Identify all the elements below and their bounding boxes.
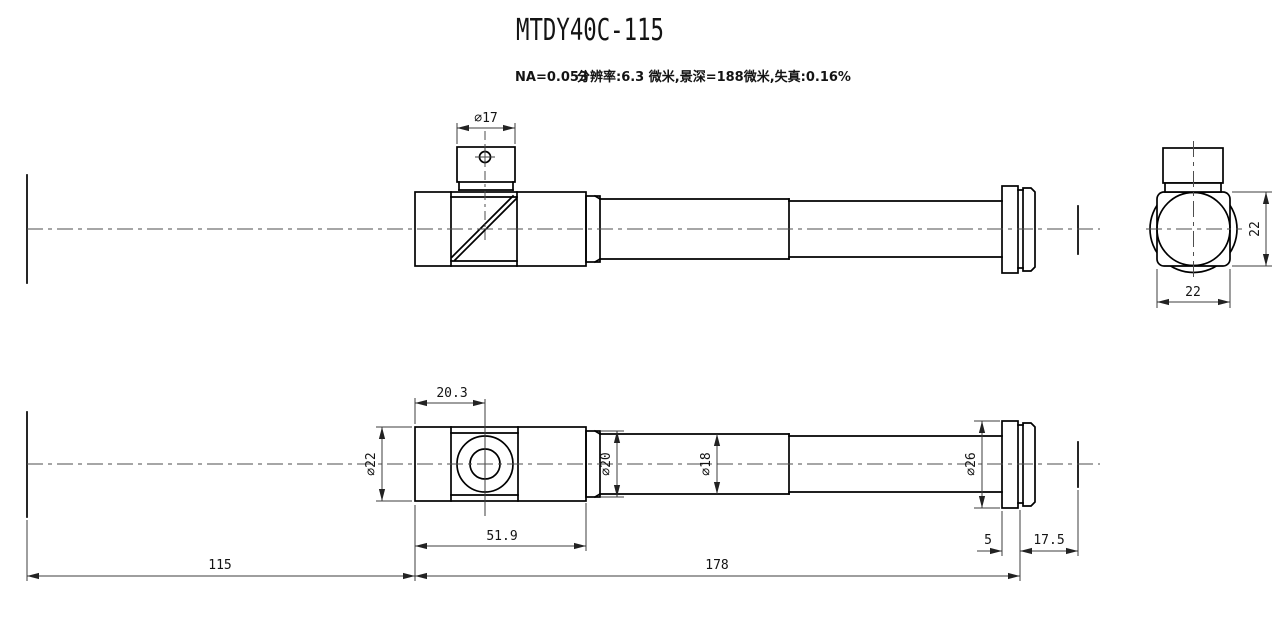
- dim-collar-diameter-label: ∅20: [599, 452, 614, 475]
- dim-object-distance-label: 115: [208, 558, 231, 573]
- beamsplitter-diagonal: [452, 196, 516, 260]
- dim-tube-length: 178: [415, 558, 1020, 576]
- dim-object-distance: 115: [27, 520, 415, 581]
- header: MTDY40C-115 NA=0.053 分辨率:6.3 微米,景深=188微米…: [515, 13, 851, 85]
- dim-flange-diameter-label: ∅26: [964, 452, 979, 475]
- dim-hole-offset: 20.3: [415, 386, 485, 424]
- dim-flange-width-label: 5: [984, 533, 992, 548]
- dim-flange-to-focus: 17.5: [1020, 490, 1078, 581]
- dim-body-length-label: 51.9: [486, 529, 517, 544]
- dim-end-width-label: 22: [1185, 285, 1201, 300]
- dim-flange-to-focus-label: 17.5: [1033, 533, 1064, 548]
- dim-body-length: 51.9: [415, 503, 586, 581]
- camera-port-neck: [459, 182, 513, 190]
- dim-port-diameter-label: ∅17: [474, 111, 497, 126]
- dim-hole-offset-label: 20.3: [436, 386, 467, 401]
- end-view: [1146, 141, 1242, 278]
- dim-tube-diameter-label: ∅18: [699, 452, 714, 475]
- top-side-view: [27, 131, 1100, 283]
- dim-tube-length-label: 178: [705, 558, 728, 573]
- cad-drawing: MTDY40C-115 NA=0.053 分辨率:6.3 微米,景深=188微米…: [0, 0, 1281, 620]
- dim-port-diameter: ∅17: [457, 111, 515, 144]
- dim-flange-width: 5: [977, 511, 1002, 556]
- dim-tube-diameter: ∅18: [699, 434, 717, 494]
- bottom-side-view: [27, 399, 1100, 517]
- dim-end-height-label: 22: [1248, 221, 1263, 237]
- page-title: MTDY40C-115: [516, 13, 664, 48]
- dim-body-diameter-label: ∅22: [364, 452, 379, 475]
- optics-spec-text: 分辨率:6.3 微米,景深=188微米,失真:0.16%: [577, 69, 851, 85]
- drawing-sheet: MTDY40C-115 NA=0.053 分辨率:6.3 微米,景深=188微米…: [0, 0, 1281, 620]
